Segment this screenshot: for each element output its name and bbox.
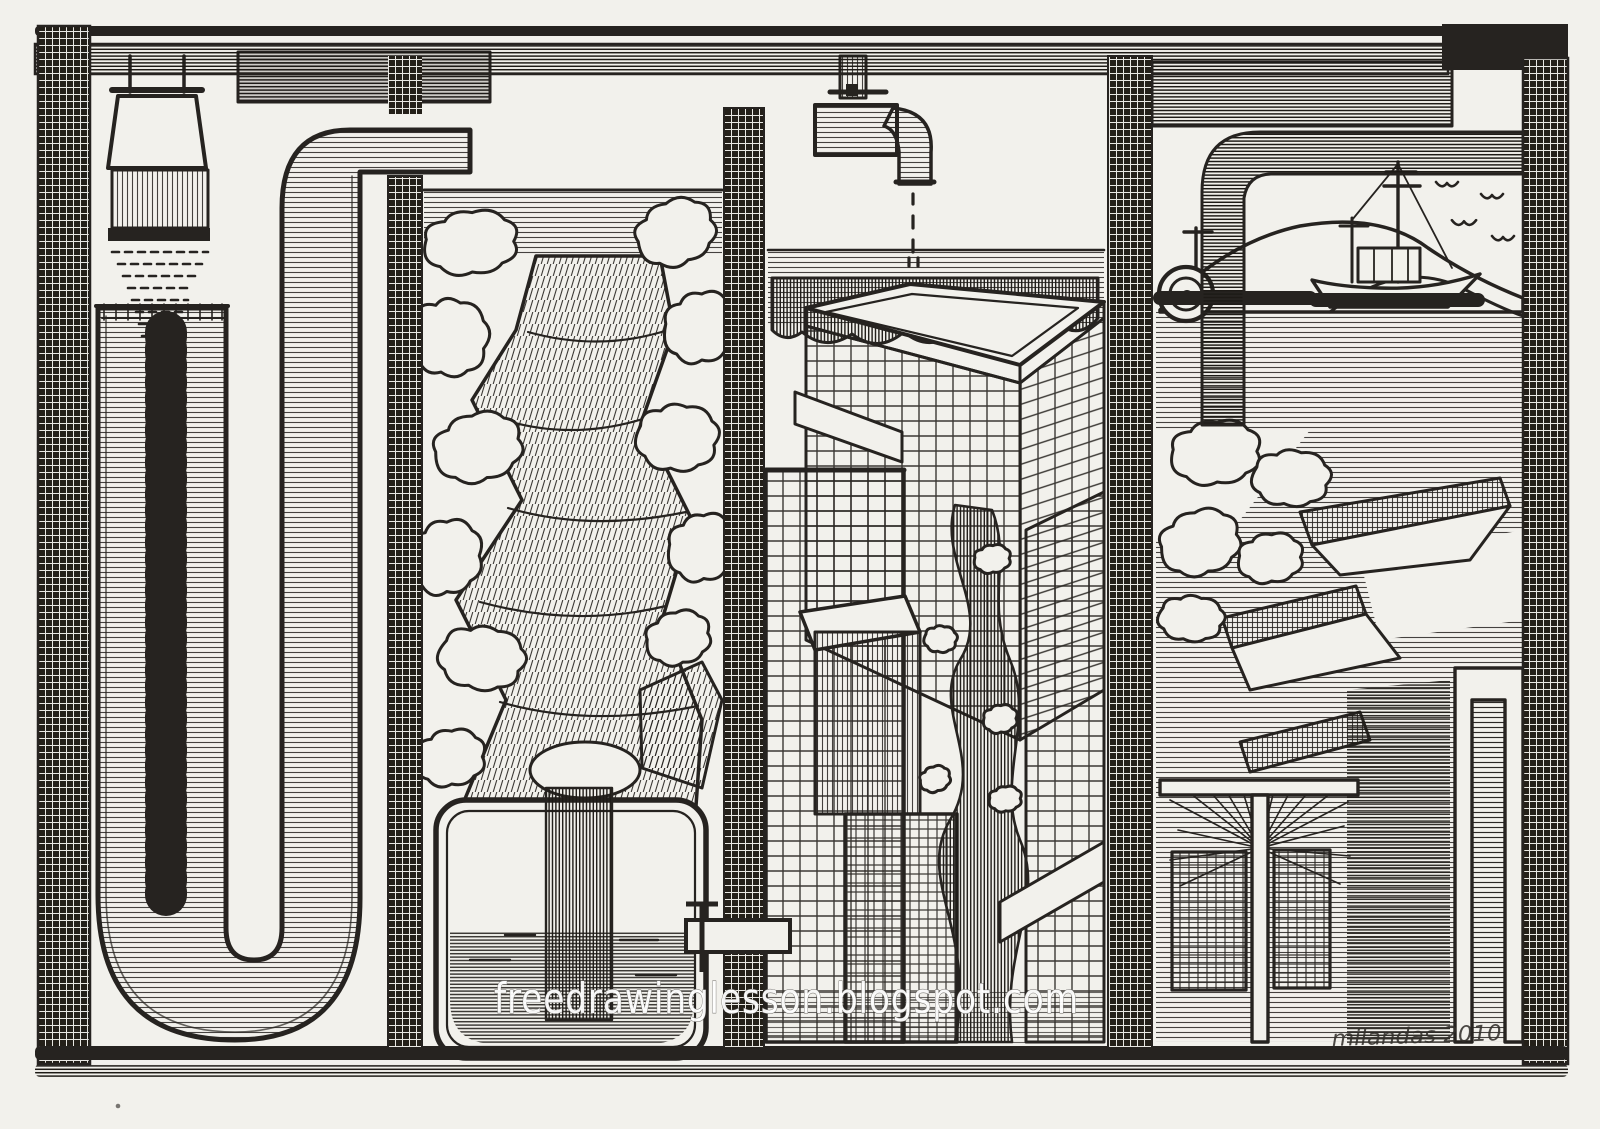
divider-a-top — [388, 56, 422, 114]
frame-top-line — [35, 26, 1565, 36]
pen-and-ink-drawing: freedrawinglesson.blogspot.com milandas … — [0, 0, 1600, 1129]
ink-speck — [116, 1104, 121, 1109]
pier-frame-icon — [1455, 668, 1523, 1042]
ink-drawing-page: freedrawinglesson.blogspot.com milandas … — [0, 0, 1600, 1129]
frame-bottom-band — [35, 1064, 1568, 1077]
frame-top-band — [35, 44, 1448, 74]
divider-c — [1108, 56, 1152, 1048]
frame-right-bar — [1523, 58, 1568, 1064]
frame-left-bar — [38, 26, 90, 1064]
divider-b — [724, 108, 764, 1048]
divider-a — [388, 176, 422, 1048]
watermark: freedrawinglesson.blogspot.com — [494, 974, 1079, 1023]
water-channel — [1347, 680, 1450, 1044]
